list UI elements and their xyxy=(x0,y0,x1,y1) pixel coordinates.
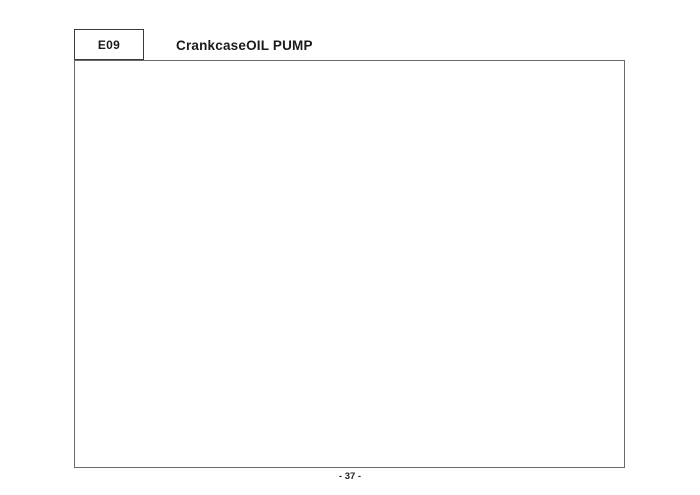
parts-catalog-page: KYMCO xyxy=(0,0,700,495)
diagram-frame xyxy=(74,60,625,468)
page-number: - 37 - xyxy=(0,471,700,482)
section-code: E09 xyxy=(98,38,120,52)
section-code-box: E09 xyxy=(74,29,144,60)
page-title: CrankcaseOIL PUMP xyxy=(176,38,313,53)
